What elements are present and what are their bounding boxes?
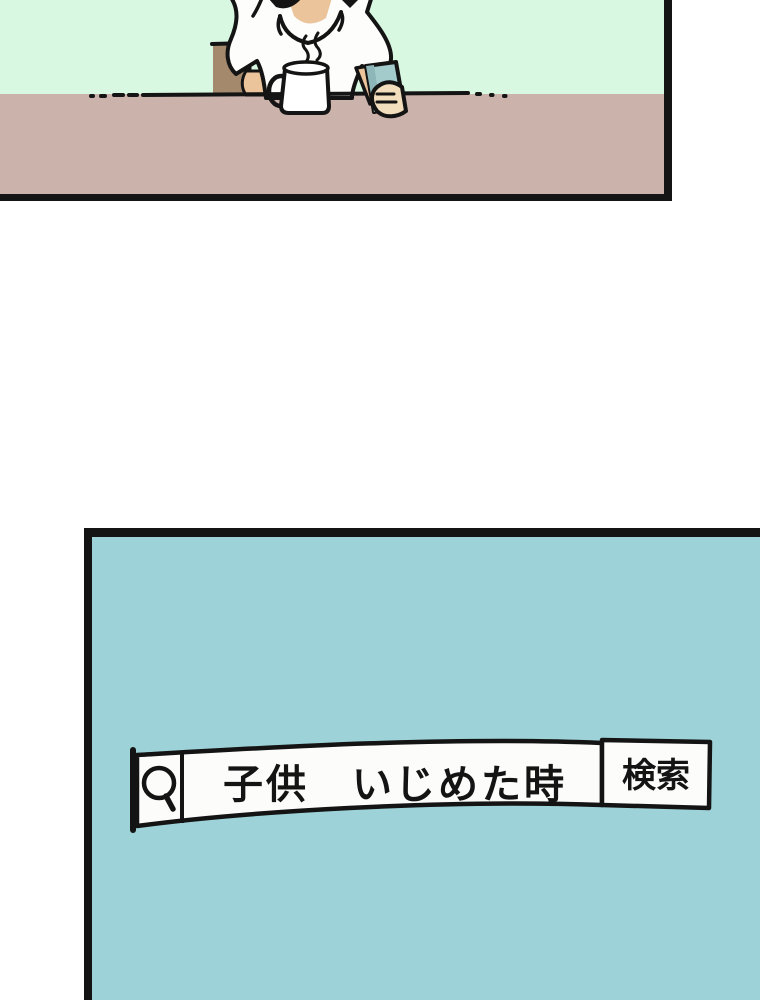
search-query-text[interactable]: 子供 いじめた時	[223, 762, 567, 808]
table-surface	[0, 94, 664, 194]
hand-drawing	[372, 82, 406, 116]
search-button[interactable]: 検索	[602, 740, 710, 808]
comic-panel-top	[0, 0, 672, 201]
comic-panel-bottom: 子供 いじめた時 検索	[84, 528, 760, 1000]
top-panel-illustration	[0, 0, 664, 194]
bottom-panel-illustration: 子供 いじめた時 検索	[92, 537, 760, 1000]
search-button-label[interactable]: 検索	[622, 756, 690, 796]
